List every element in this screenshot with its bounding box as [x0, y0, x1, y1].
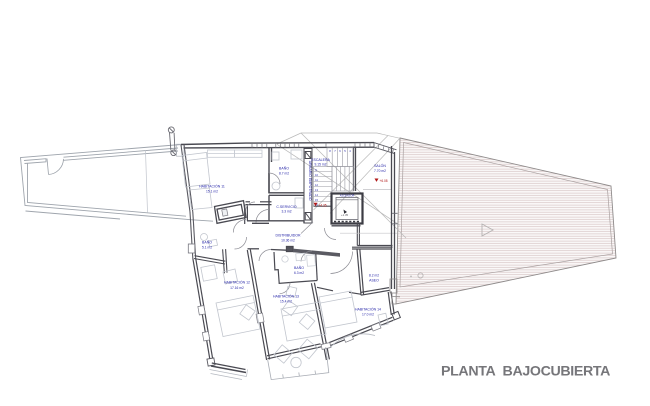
- svg-text:HABITACIÓN 12: HABITACIÓN 12: [224, 280, 250, 285]
- svg-text:C.SERVICIO: C.SERVICIO: [276, 205, 296, 209]
- svg-text:14: 14: [315, 193, 318, 197]
- svg-text:9.15 m2: 9.15 m2: [315, 163, 327, 167]
- svg-text:SALÓN: SALÓN: [374, 163, 386, 168]
- svg-text:+4.35: +4.35: [319, 203, 327, 207]
- svg-text:+1.35: +1.35: [341, 213, 349, 217]
- svg-text:PLANTA BAJOCUBIERTA: PLANTA BAJOCUBIERTA: [441, 364, 610, 380]
- svg-text:6.3 m2: 6.3 m2: [294, 271, 304, 275]
- svg-text:BAÑO: BAÑO: [294, 265, 304, 270]
- svg-text:HABITACIÓN 11: HABITACIÓN 11: [199, 184, 225, 189]
- svg-text:8.7 m2: 8.7 m2: [279, 172, 289, 176]
- svg-text:15: 15: [315, 198, 318, 202]
- svg-text:ESCALERA: ESCALERA: [311, 158, 330, 162]
- svg-text:HABITACIÓN 13: HABITACIÓN 13: [273, 294, 299, 299]
- svg-text:ASEO: ASEO: [369, 279, 379, 283]
- svg-text:5.1 m2: 5.1 m2: [202, 246, 212, 250]
- svg-text:ASCENSOR: ASCENSOR: [340, 194, 355, 198]
- svg-text:7.70 m2: 7.70 m2: [374, 169, 386, 173]
- svg-text:13: 13: [315, 188, 318, 192]
- svg-text:12: 12: [315, 183, 318, 187]
- svg-text:3.3 m2: 3.3 m2: [281, 210, 291, 214]
- svg-text:15.1 m2: 15.1 m2: [206, 190, 218, 194]
- svg-text:+6.08: +6.08: [380, 179, 388, 183]
- svg-text:17.16 m2: 17.16 m2: [230, 286, 244, 290]
- svg-text:ARMARIO EMPOTRADO: ARMARIO EMPOTRADO: [308, 161, 312, 201]
- svg-text:15.4 m2: 15.4 m2: [280, 300, 292, 304]
- svg-text:17.0 m2: 17.0 m2: [362, 313, 374, 317]
- svg-text:10: 10: [315, 173, 318, 177]
- svg-text:BAÑO: BAÑO: [202, 240, 212, 245]
- svg-text:8.2 m2: 8.2 m2: [369, 274, 379, 278]
- svg-text:11: 11: [315, 178, 318, 182]
- svg-text:10.36 m2: 10.36 m2: [281, 239, 295, 243]
- svg-text:BAÑO: BAÑO: [279, 166, 289, 171]
- svg-text:HABITACIÓN 14: HABITACIÓN 14: [355, 307, 381, 312]
- svg-text:DISTRIBUIDOR: DISTRIBUIDOR: [275, 234, 301, 238]
